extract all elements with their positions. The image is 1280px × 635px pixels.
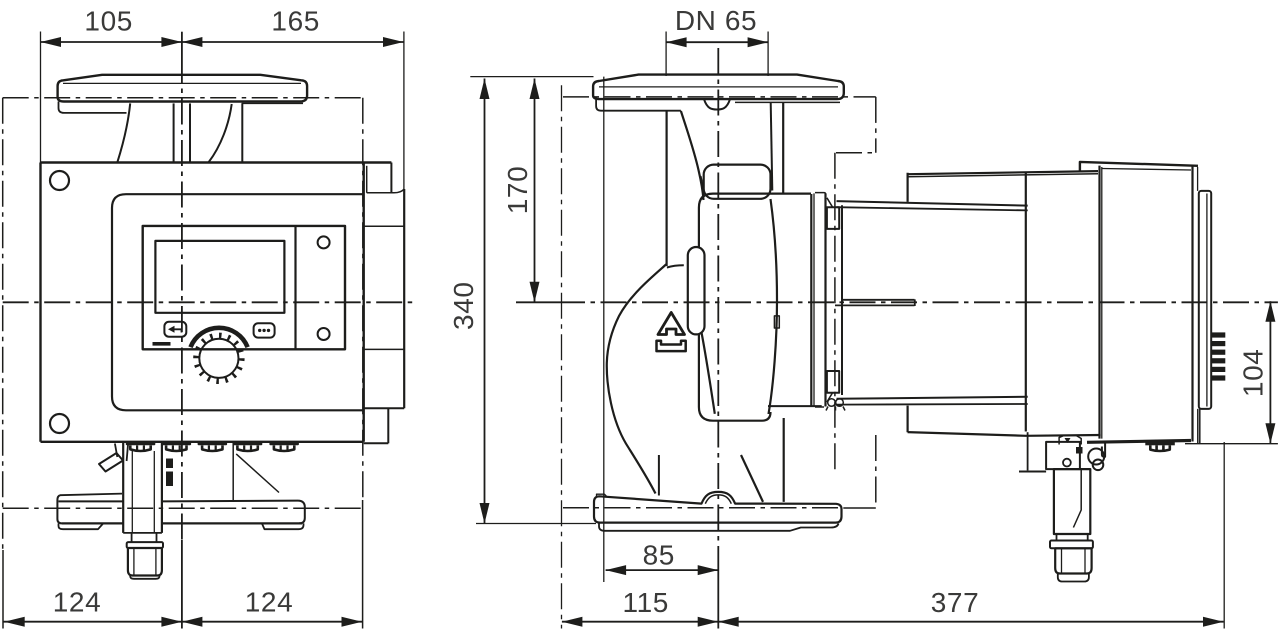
svg-text:340: 340	[448, 281, 479, 330]
svg-text:124: 124	[53, 587, 102, 618]
svg-text:DN 65: DN 65	[675, 5, 757, 36]
svg-text:115: 115	[622, 587, 668, 618]
svg-text:85: 85	[643, 540, 675, 571]
svg-text:377: 377	[931, 587, 980, 618]
svg-text:104: 104	[1238, 349, 1269, 398]
svg-text:170: 170	[502, 166, 533, 215]
svg-text:165: 165	[271, 6, 320, 37]
svg-text:124: 124	[245, 587, 294, 618]
svg-text:105: 105	[84, 6, 133, 37]
